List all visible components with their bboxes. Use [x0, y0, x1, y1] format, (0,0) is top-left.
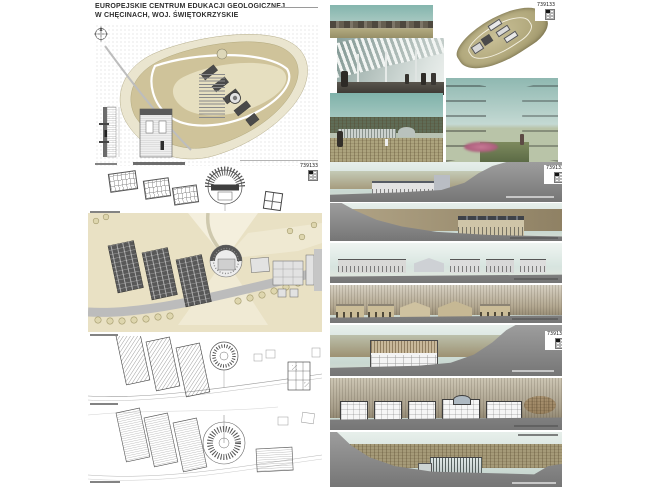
masterplan-roof-hatched: [88, 336, 322, 404]
section-building-cut: [408, 401, 436, 421]
title-line-2: W CHĘCINACH, WOJ. ŚWIĘTOKRZYSKIE: [95, 12, 310, 21]
section-building-cut: [340, 401, 368, 421]
person-silhouette: [405, 74, 409, 84]
elevation-building: [450, 259, 480, 273]
section-strip-5: 739133: [330, 325, 562, 376]
person-silhouette: [431, 73, 436, 85]
section-strip-1: 739133: [330, 162, 562, 202]
canopy-slats: [337, 38, 444, 79]
colonnade-building: [338, 129, 396, 138]
render-panorama: [330, 5, 433, 38]
elevation-building-pitched: [414, 258, 444, 272]
board-locator-grid-icon: [555, 338, 562, 349]
person-silhouette: [385, 139, 388, 146]
render-meadow: [330, 93, 443, 162]
elevation-building: [338, 259, 406, 273]
site-plan-terrain: [95, 24, 320, 166]
strip-caption: [512, 318, 558, 320]
floor-plan-block-2: [143, 177, 171, 199]
elevation-building: [486, 259, 514, 273]
strip-caption: [518, 434, 558, 436]
masterplan-ground-floor: [88, 213, 322, 332]
meadow-foreground: [330, 29, 433, 38]
dome-building: [398, 127, 415, 137]
render-courtyard: [446, 78, 558, 162]
panel-number-marker: 739133: [298, 163, 319, 182]
panel-number: 739133: [537, 3, 555, 8]
elevation-strip-4: [330, 285, 562, 323]
board-locator-grid-icon: [308, 170, 318, 181]
wall-detail-1: [95, 103, 127, 161]
title-leader-line: [266, 7, 318, 8]
detail-caption: [133, 162, 185, 165]
ref-line: [240, 160, 318, 161]
floor-plan-amphitheatre: [205, 165, 245, 211]
strip-caption: [512, 370, 554, 372]
person-silhouette: [520, 134, 524, 145]
building-silhouette: [330, 21, 433, 28]
floor-plan-block-1: [108, 170, 138, 193]
strip-caption: [506, 196, 554, 198]
section-building-cut-center: [442, 399, 480, 421]
floor-plan-block-3: [172, 184, 199, 205]
render-aerial-model: 739133: [448, 0, 558, 80]
strip-caption: [514, 425, 558, 427]
person-silhouette: [337, 131, 343, 147]
detail-caption: [95, 163, 117, 165]
person-silhouette: [341, 71, 348, 87]
autumn-trees: [524, 396, 556, 414]
flower-bed-pink: [464, 142, 498, 152]
elevation-strip-3: [330, 243, 562, 283]
plan-legend: [199, 74, 225, 120]
strip-caption: [510, 237, 558, 239]
section-strip-6: [330, 378, 562, 430]
page-title: EUROPEJSKIE CENTRUM EDUKACJI GEOLOGICZNE…: [95, 3, 310, 20]
strip-caption: [512, 482, 556, 484]
board-locator-grid-icon: [554, 172, 562, 183]
section-building-cut: [374, 401, 402, 421]
person-silhouette: [421, 73, 426, 85]
panel-number: 739133: [546, 166, 562, 171]
competition-board: EUROPEJSKIE CENTRUM EDUKACJI GEOLOGICZNE…: [0, 0, 658, 487]
panel-number-marker: 739133: [545, 331, 562, 350]
panel-number-marker: 739133: [535, 2, 556, 21]
wall-detail-2: [138, 107, 176, 161]
board-locator-grid-icon: [545, 9, 555, 20]
floor-plan-pavilion: [263, 191, 283, 211]
masterplan-roof-striped: [88, 405, 322, 485]
panel-number: 739133: [547, 332, 562, 337]
panel-number-marker: 739133: [544, 165, 562, 184]
elevation-building: [520, 259, 546, 273]
render-canopy: [337, 38, 444, 95]
panel-number: 739133: [300, 164, 318, 169]
plan-caption: [90, 481, 120, 483]
strip-caption: [514, 278, 558, 280]
section-strip-7: [330, 432, 562, 487]
section-strip-2: [330, 203, 562, 241]
